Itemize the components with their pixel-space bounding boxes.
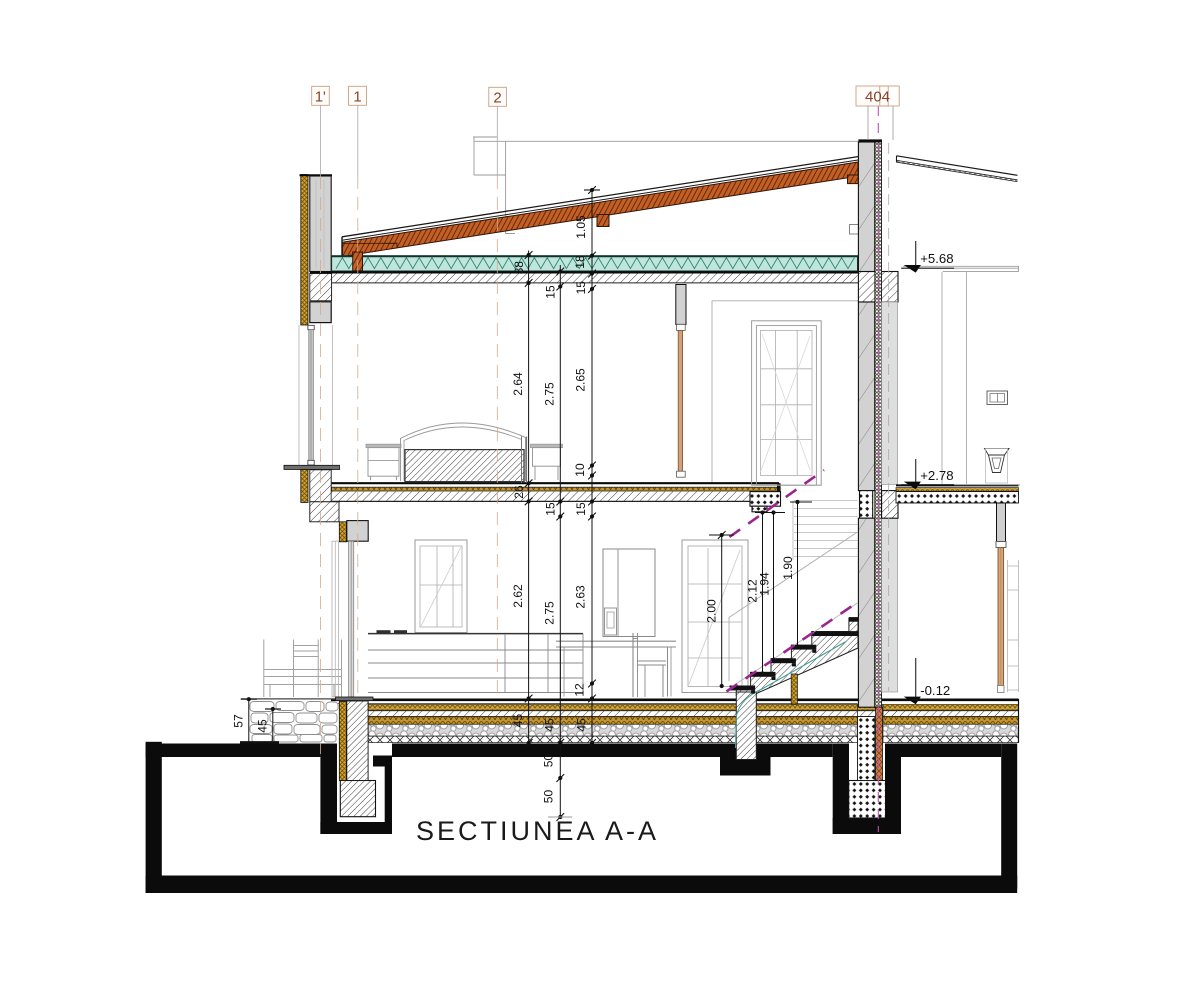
svg-text:15: 15 (574, 281, 588, 295)
svg-text:15: 15 (544, 285, 558, 299)
svg-text:45: 45 (256, 719, 270, 733)
svg-text:18: 18 (573, 255, 587, 269)
svg-text:-0.12: -0.12 (920, 683, 950, 698)
svg-text:10: 10 (573, 463, 587, 477)
svg-text:45: 45 (543, 718, 557, 732)
svg-text:1': 1' (315, 88, 326, 105)
svg-text:2.00: 2.00 (705, 599, 719, 623)
svg-text:2: 2 (493, 89, 501, 106)
svg-text:15: 15 (574, 502, 588, 516)
svg-text:2.75: 2.75 (543, 382, 557, 406)
svg-text:2.62: 2.62 (511, 584, 525, 608)
svg-text:2.64: 2.64 (511, 372, 525, 396)
svg-text:2.75: 2.75 (543, 601, 557, 625)
svg-text:15: 15 (544, 502, 558, 516)
svg-text:50: 50 (542, 790, 556, 804)
svg-text:1: 1 (353, 88, 361, 105)
svg-text:+5.68: +5.68 (920, 251, 953, 266)
svg-text:26: 26 (512, 485, 526, 499)
svg-text:1.94: 1.94 (758, 572, 772, 596)
svg-text:2.65: 2.65 (573, 368, 587, 392)
svg-text:SECTIUNEA A-A: SECTIUNEA A-A (416, 816, 659, 846)
svg-text:45: 45 (574, 718, 588, 732)
svg-text:2.63: 2.63 (573, 585, 587, 609)
svg-text:57: 57 (232, 714, 246, 728)
svg-text:45: 45 (511, 714, 525, 728)
svg-text:404: 404 (865, 89, 890, 106)
svg-text:1.05: 1.05 (574, 215, 588, 239)
svg-text:+2.78: +2.78 (920, 468, 953, 483)
svg-text:38: 38 (512, 261, 526, 275)
svg-text:50: 50 (542, 754, 556, 768)
svg-text:12: 12 (572, 683, 586, 697)
svg-text:1.90: 1.90 (781, 556, 795, 580)
